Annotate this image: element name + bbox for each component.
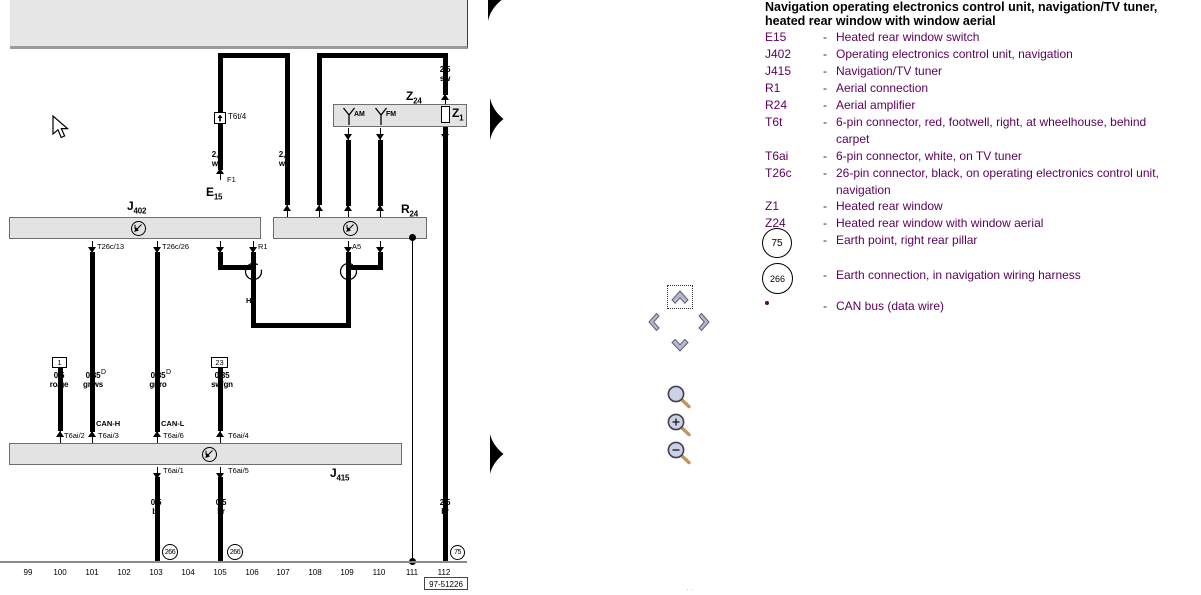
legend-row-r1: R1-Aerial connection: [765, 80, 1190, 97]
pin-label: T6ai/4: [228, 432, 249, 440]
track-number: 103: [144, 568, 168, 577]
track-number: 105: [208, 568, 232, 577]
zoom-in-icon[interactable]: [666, 412, 694, 440]
wire-label-sup: D: [101, 369, 106, 376]
track-ref-label: 23: [215, 358, 223, 367]
track-number: 99: [16, 568, 40, 577]
wire-can-h: [90, 252, 95, 432]
pin-label: T6t/4: [228, 113, 246, 121]
shield-loop-icon: [244, 262, 263, 281]
antenna-label-am: AM: [354, 111, 365, 119]
pin-arrow-icon: [153, 241, 162, 253]
pin-arrow-icon: [216, 431, 225, 443]
pin-arrow-icon: [376, 205, 385, 217]
pin-arrow-icon: [249, 241, 258, 253]
wire-earth-266: [218, 477, 223, 563]
wire-label-sup: D: [166, 369, 171, 376]
internal-connection-icon: [342, 220, 359, 237]
zoom-tool-icon[interactable]: [666, 384, 694, 412]
wire-label: 2,5ws: [269, 151, 299, 168]
legend-row-earth-266: -Earth connection, in navigation wiring …: [765, 267, 1190, 284]
pan-up-icon[interactable]: [670, 288, 690, 306]
pin-label: A5: [352, 243, 361, 251]
wire-segment: [285, 53, 290, 205]
inline-connector-icon: [214, 112, 226, 124]
current-track-arrow-icon[interactable]: [487, 433, 505, 475]
pan-down-icon[interactable]: [670, 339, 690, 354]
mouse-cursor-icon: [52, 115, 72, 141]
bus-label-hf: HF: [246, 297, 256, 305]
legend-row-r24: R24-Aerial amplifier: [765, 97, 1190, 114]
wire-label: 0,5br: [206, 499, 236, 516]
earth-symbol-266: 266: [227, 544, 243, 560]
pin-label: T6ai/2: [64, 432, 85, 440]
track-number: 108: [303, 568, 327, 577]
pin-arrow-icon: [153, 431, 162, 443]
label-j402: J402: [127, 199, 146, 215]
pin-arrow-icon: [283, 205, 292, 217]
legend-row-can-bus: -CAN bus (data wire): [765, 298, 1190, 315]
wire-label: 2,5br: [430, 499, 460, 516]
legend-row-earth-75: -Earth point, right rear pillar: [765, 232, 1190, 249]
shield-loop-icon: [339, 262, 358, 281]
label-j415: J415: [330, 466, 349, 482]
wire-end-arrow-icon: [216, 168, 225, 180]
wire-hf: [251, 323, 351, 328]
wire-can-l: [155, 252, 160, 432]
legend-row-t26c: T26c- 26-pin connector, black, on operat…: [765, 165, 1190, 199]
track-number: 106: [240, 568, 264, 577]
legend-title: Navigation operating electronics control…: [765, 1, 1201, 28]
legend-row-j402: J402-Operating electronics control unit,…: [765, 46, 1190, 63]
wire-fm: [378, 140, 383, 206]
track-number: 104: [176, 568, 200, 577]
wire-label: 0,5br: [141, 499, 171, 516]
pin-label: T26c/13: [97, 243, 124, 251]
pin-label: T6ai/5: [228, 467, 249, 475]
pin-arrow-icon: [88, 241, 97, 253]
bus-label-can-l: CAN-L: [161, 420, 184, 428]
track-number: 111: [400, 568, 424, 577]
wiring-diagram-viewer: 1 23 J402 R24 Z24 Z1 E15 J415 T6t/4 F1 T…: [0, 0, 1201, 595]
pin-label: T6ai/3: [98, 432, 119, 440]
pin-label: R1: [258, 243, 268, 251]
track-number: 100: [48, 568, 72, 577]
antenna-label-fm: FM: [386, 111, 396, 119]
earth-symbol-266: 266: [162, 544, 178, 560]
label-r24: R24: [401, 202, 418, 218]
legend-row-j415: J415-Navigation/TV tuner: [765, 63, 1190, 80]
pin-label: F1: [227, 176, 236, 184]
current-track-arrow-icon[interactable]: [485, 0, 503, 22]
zoom-out-icon[interactable]: [666, 440, 694, 468]
pin-arrow-icon: [88, 431, 97, 443]
legend-row-z24: Z24-Heated rear window with window aeria…: [765, 215, 1190, 232]
diagram-top-power-rail: [10, 0, 468, 49]
current-track-rail: [0, 561, 467, 563]
wire-segment: [317, 53, 448, 58]
pin-arrow-icon: [376, 128, 385, 140]
wire-am: [346, 140, 351, 206]
label-e15: E15: [206, 185, 222, 201]
wire-z1-earth: [443, 122, 448, 563]
pin-arrow-icon: [153, 467, 162, 479]
track-number: 102: [112, 568, 136, 577]
pin-arrow-icon: [344, 128, 353, 140]
pan-left-icon[interactable]: [645, 311, 660, 333]
track-ref-label: 1: [57, 358, 61, 367]
label-z1: Z1: [452, 106, 463, 122]
wire-label: 2,5ws: [202, 151, 232, 168]
wire-label: 0,5ro/ge: [44, 372, 74, 389]
track-number: 112: [432, 568, 456, 577]
pin-arrow-icon: [376, 241, 385, 253]
track-ref-box: 23: [211, 357, 228, 368]
track-number: 110: [367, 568, 391, 577]
heater-element-icon: [441, 106, 450, 123]
track-ref-box: 1: [52, 357, 67, 368]
pin-label: T6ai/6: [163, 432, 184, 440]
wire-segment: [317, 53, 322, 205]
wire-segment: [218, 53, 290, 58]
pin-label: T26c/26: [162, 243, 189, 251]
earth-symbol-75: 75: [450, 545, 465, 560]
internal-connection-icon: [201, 446, 218, 463]
pin-arrow-icon: [441, 128, 450, 140]
current-track-arrow-icon[interactable]: [487, 97, 505, 141]
wire-thin: [412, 240, 413, 563]
pin-arrow-icon: [344, 205, 353, 217]
wire-label: 0,35sw/gn: [207, 372, 237, 389]
pin-arrow-icon: [315, 205, 324, 217]
label-z24: Z24: [406, 89, 422, 105]
track-number: 109: [335, 568, 359, 577]
page-edge-marks: · ·: [686, 585, 694, 594]
pin-arrow-icon: [216, 241, 225, 253]
junction-dot: [409, 234, 416, 241]
legend-row-e15: E15-Heated rear window switch: [765, 29, 1190, 46]
legend-row-z1: Z1-Heated rear window: [765, 198, 1190, 215]
diagram-number-box: 97-51226: [424, 577, 468, 590]
legend-row-t6ai: T6ai-6-pin connector, white, on TV tuner: [765, 148, 1190, 165]
legend-row-t6t: T6t- 6-pin connector, red, footwell, rig…: [765, 114, 1190, 148]
pin-label: T6ai/1: [163, 467, 184, 475]
track-number: 101: [80, 568, 104, 577]
pan-right-icon[interactable]: [698, 311, 713, 333]
bus-label-can-h: CAN-H: [96, 420, 120, 428]
wire-earth-266: [155, 477, 160, 563]
pin-arrow-icon: [216, 467, 225, 479]
internal-connection-icon: [130, 220, 147, 237]
track-number: 107: [271, 568, 295, 577]
wire-label: 2,5sw: [430, 66, 460, 83]
